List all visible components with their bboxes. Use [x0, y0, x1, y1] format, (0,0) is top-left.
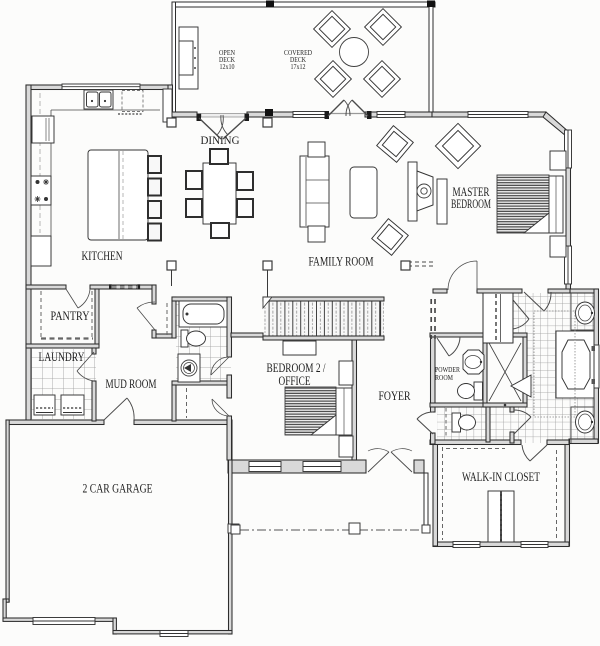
- svg-text:FOYER: FOYER: [379, 388, 411, 403]
- svg-text:MUD ROOM: MUD ROOM: [106, 377, 157, 391]
- svg-text:POWDER: POWDER: [435, 366, 460, 374]
- svg-text:PANTRY: PANTRY: [51, 309, 90, 323]
- svg-text:LAUNDRY: LAUNDRY: [39, 350, 85, 364]
- svg-text:FAMILY ROOM: FAMILY ROOM: [309, 254, 374, 269]
- svg-text:WALK-IN CLOSET: WALK-IN CLOSET: [462, 469, 540, 484]
- svg-text:DINING: DINING: [201, 133, 240, 147]
- svg-text:BEDROOM: BEDROOM: [451, 197, 491, 211]
- svg-text:12x10: 12x10: [220, 63, 235, 71]
- svg-text:ROOM: ROOM: [435, 374, 454, 382]
- svg-text:2 CAR GARAGE: 2 CAR GARAGE: [83, 481, 153, 496]
- svg-text:17x12: 17x12: [291, 63, 306, 71]
- svg-text:OFFICE: OFFICE: [279, 373, 311, 388]
- svg-text:KITCHEN: KITCHEN: [82, 248, 123, 263]
